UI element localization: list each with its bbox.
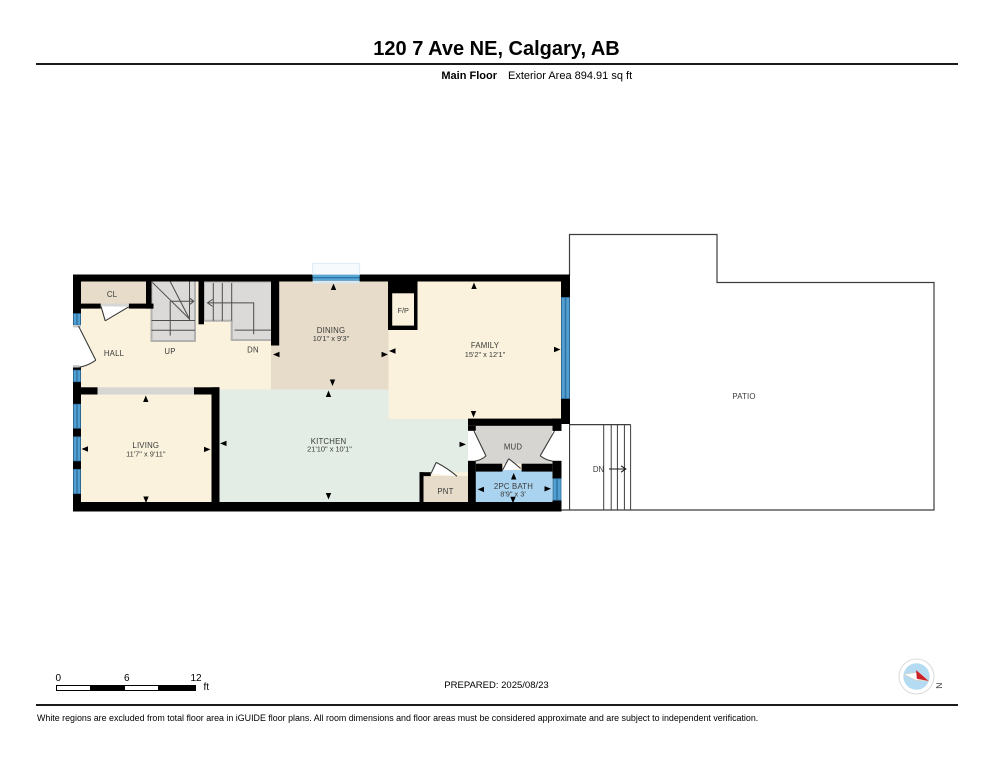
svg-text:UP: UP xyxy=(164,347,175,356)
svg-text:PNT: PNT xyxy=(437,487,453,496)
svg-text:FAMILY: FAMILY xyxy=(471,341,500,350)
svg-text:8'9" x 3': 8'9" x 3' xyxy=(500,490,526,499)
svg-text:15'2" x 12'1": 15'2" x 12'1" xyxy=(465,350,506,359)
svg-text:PATIO: PATIO xyxy=(732,392,755,401)
svg-text:DN: DN xyxy=(593,465,604,474)
svg-text:CL: CL xyxy=(107,290,118,299)
svg-text:10'1" x 9'3": 10'1" x 9'3" xyxy=(313,334,350,343)
svg-text:11'7" x 9'11": 11'7" x 9'11" xyxy=(126,450,166,459)
svg-text:21'10" x 10'1": 21'10" x 10'1" xyxy=(307,445,352,454)
svg-text:F/P: F/P xyxy=(398,306,409,315)
svg-text:MUD: MUD xyxy=(504,443,523,452)
svg-text:HALL: HALL xyxy=(104,349,125,358)
svg-text:DN: DN xyxy=(247,345,259,354)
